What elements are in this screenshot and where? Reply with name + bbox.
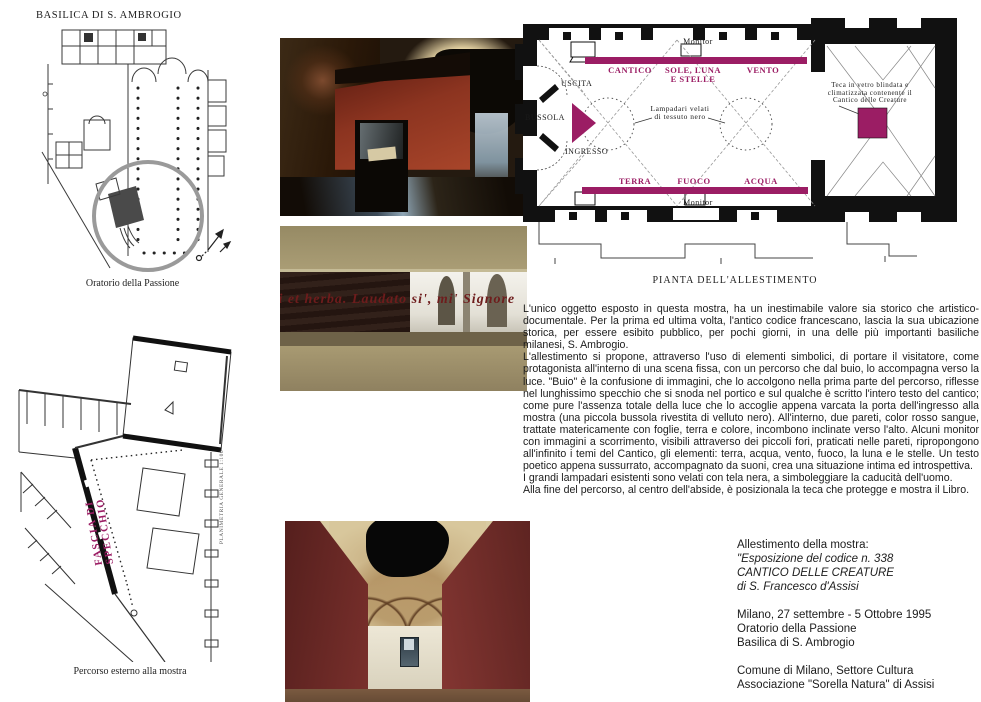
bussola-triangle: [572, 103, 596, 143]
allestimento-plan-figure: Monitor CANTICO SOLE, LUNA E STELLE VENT…: [515, 8, 975, 290]
photo-exhibit-case: [280, 38, 530, 216]
basilica-plan-drawing: [32, 24, 232, 274]
label-sole-luna-stelle: SOLE, LUNA E STELLE: [662, 66, 724, 83]
label-vento: VENTO: [741, 66, 785, 75]
basilica-atrium: [62, 30, 166, 64]
credits-heading: Allestimento della mostra:: [737, 538, 967, 552]
label-monitor-bottom: Monitor: [673, 199, 723, 208]
basilica-column-dots: [138, 88, 198, 253]
canticle-mirror-text: ri et herba. Laudato si', mi' Signore: [280, 292, 527, 308]
label-acqua: ACQUA: [736, 177, 786, 186]
credits-block: Allestimento della mostra: "Esposizione …: [737, 538, 967, 692]
photo2-lower-shelf: [280, 332, 527, 347]
credits-organizer-2: Associazione "Sorella Natura" di Assisi: [737, 678, 967, 692]
percorso-plan-drawing: [15, 332, 245, 662]
label-ingresso: INGRESSO: [565, 148, 608, 157]
label-lampadari: Lampadari velati di tessuto nero: [647, 105, 713, 121]
credits-event-dates: Milano, 27 settembre - 5 Ottobre 1995: [737, 608, 967, 622]
exhibition-description: L'unico oggetto esposto in questa mostra…: [523, 303, 979, 497]
percorso-linework: [19, 338, 231, 662]
percorso-plan-caption: Percorso esterno alla mostra: [15, 666, 245, 677]
credits-exhibition-title-1: "Esposizione del codice n. 338: [737, 552, 967, 566]
label-uscita: USCITA: [561, 80, 592, 89]
north-arrow-icon: [197, 230, 231, 261]
allestimento-plan-caption: PIANTA DELL'ALLESTIMENTO: [575, 275, 895, 286]
label-terra: TERRA: [610, 177, 660, 186]
photo2-wall-bottom: [280, 346, 527, 391]
basilica-plan-title: BASILICA DI S. AMBROGIO: [36, 10, 182, 21]
label-fuoco: FUOCO: [669, 177, 719, 186]
label-monitor-top: Monitor: [673, 38, 723, 47]
description-paragraph-1: L'unico oggetto esposto in questa mostra…: [523, 303, 979, 351]
description-paragraph-2: L'allestimento si propone, attraverso l'…: [523, 351, 979, 472]
allestimento-plan-drawing: [515, 8, 975, 270]
portico-steps: [539, 222, 917, 264]
scanned-exhibition-page: BASILICA DI S. AMBROGIO: [0, 0, 981, 702]
mirror-wall-bar-bottom: [582, 187, 808, 194]
planimetria-generale-note: PLANIMETRIA GENERALE 1:100: [219, 442, 225, 552]
description-paragraph-3: I grandi lampadari esistenti sono velati…: [523, 472, 979, 484]
teca-square: [858, 108, 887, 138]
oratorio-highlight-circle: [94, 162, 202, 270]
label-cantico: CANTICO: [605, 66, 655, 75]
photo3-floor: [285, 689, 530, 702]
credits-exhibition-title-3: di S. Francesco d'Assisi: [737, 580, 967, 594]
credits-event-venue: Oratorio della Passione: [737, 622, 967, 636]
description-paragraph-4: Alla fine del percorso, al centro dell'a…: [523, 484, 979, 496]
credits-event-basilica: Basilica di S. Ambrogio: [737, 636, 967, 650]
label-teca: Teca in vetro blindata e climatizzata co…: [825, 82, 915, 105]
basilica-left-wall: [43, 64, 53, 184]
basilica-boundary-line: [42, 152, 110, 268]
photo-mirror-strip: ri et herba. Laudato si', mi' Signore: [280, 226, 527, 391]
photo3-case-glass: [404, 639, 414, 650]
label-bussola: BUSSOLA: [525, 114, 565, 123]
photo-oratory-vault: [285, 521, 530, 702]
basilica-plan-caption: Oratorio della Passione: [40, 278, 225, 289]
mirror-wall-bar-top: [585, 57, 807, 64]
credits-exhibition-title-2: CANTICO DELLE CREATURE: [737, 566, 967, 580]
lampadario-circle-right: [720, 98, 772, 150]
basilica-atrium-cells: [84, 33, 146, 42]
credits-organizer-1: Comune di Milano, Settore Cultura: [737, 664, 967, 678]
photo2-wall-top: [280, 226, 527, 272]
